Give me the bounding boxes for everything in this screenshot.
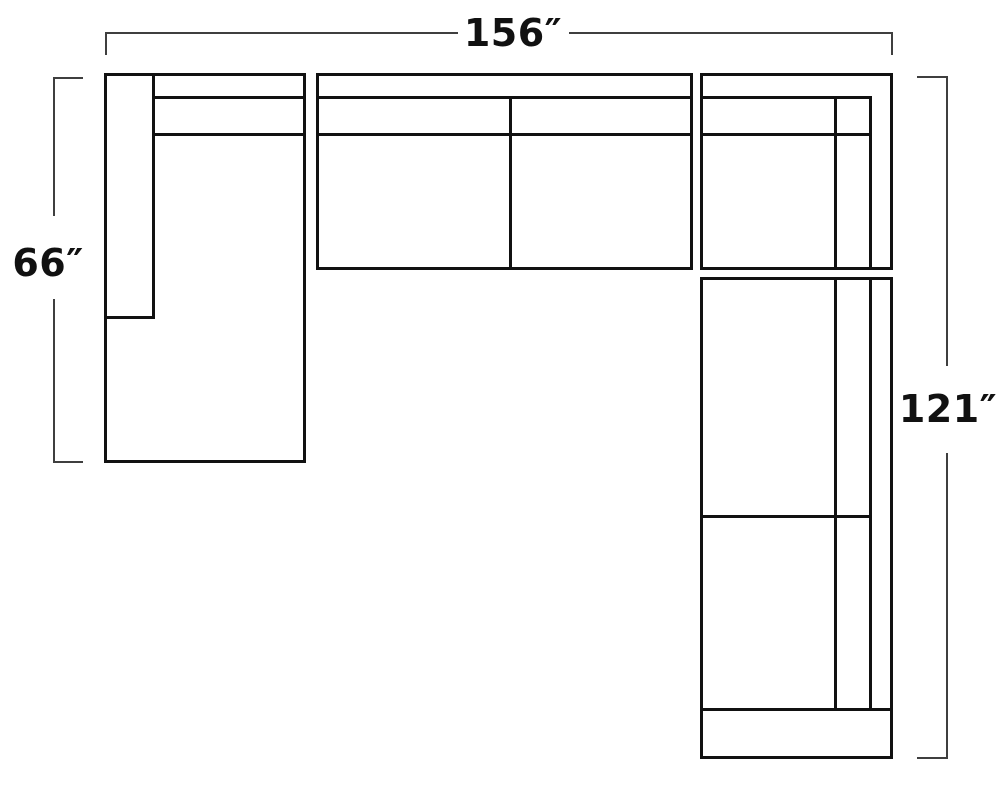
middle-sofa-back-line-outer <box>316 96 693 99</box>
right-sofa-back-line-inner <box>834 277 837 711</box>
corner-unit-outline <box>700 73 893 270</box>
corner-side-line-outer <box>869 96 872 270</box>
width-dimension-tick-left <box>105 32 107 55</box>
left-height-dimension-tick-top <box>53 77 83 79</box>
middle-sofa-back-line-inner <box>316 133 693 136</box>
left-height-dimension-tick-bottom <box>53 461 83 463</box>
middle-sofa-outline <box>316 73 693 270</box>
right-height-dimension-label: 121″ <box>894 388 1000 430</box>
corner-back-line-outer <box>700 96 872 99</box>
chaise-unit-outline <box>104 73 306 463</box>
right-sofa-arm-line <box>700 708 893 711</box>
right-sofa-seat-divider <box>700 515 872 518</box>
chaise-arm-line-vertical <box>152 73 155 319</box>
right-height-dimension-tick-bottom <box>917 757 947 759</box>
left-height-dimension-line-lower <box>53 299 55 463</box>
middle-sofa-seat-divider <box>509 96 512 270</box>
sectional-dimension-diagram: 156″ 66″ 121″ <box>0 0 1000 793</box>
right-height-dimension-line-lower <box>946 453 948 759</box>
corner-back-line-inner <box>700 133 872 136</box>
left-height-dimension-label: 66″ <box>3 242 93 284</box>
right-sofa-outline <box>700 277 893 759</box>
right-sofa-back-line-outer <box>869 277 872 711</box>
width-dimension-label: 156″ <box>451 12 575 54</box>
width-dimension-line-right <box>569 32 892 34</box>
left-height-dimension-line-upper <box>53 77 55 216</box>
width-dimension-line-left <box>106 32 458 34</box>
right-height-dimension-tick-top <box>917 76 947 78</box>
right-height-dimension-line-upper <box>946 76 948 366</box>
corner-side-line-inner <box>834 96 837 270</box>
chaise-arm-line-cap <box>104 316 155 319</box>
chaise-back-line-inner <box>152 133 306 136</box>
width-dimension-tick-right <box>891 32 893 55</box>
chaise-back-line-outer <box>152 96 306 99</box>
